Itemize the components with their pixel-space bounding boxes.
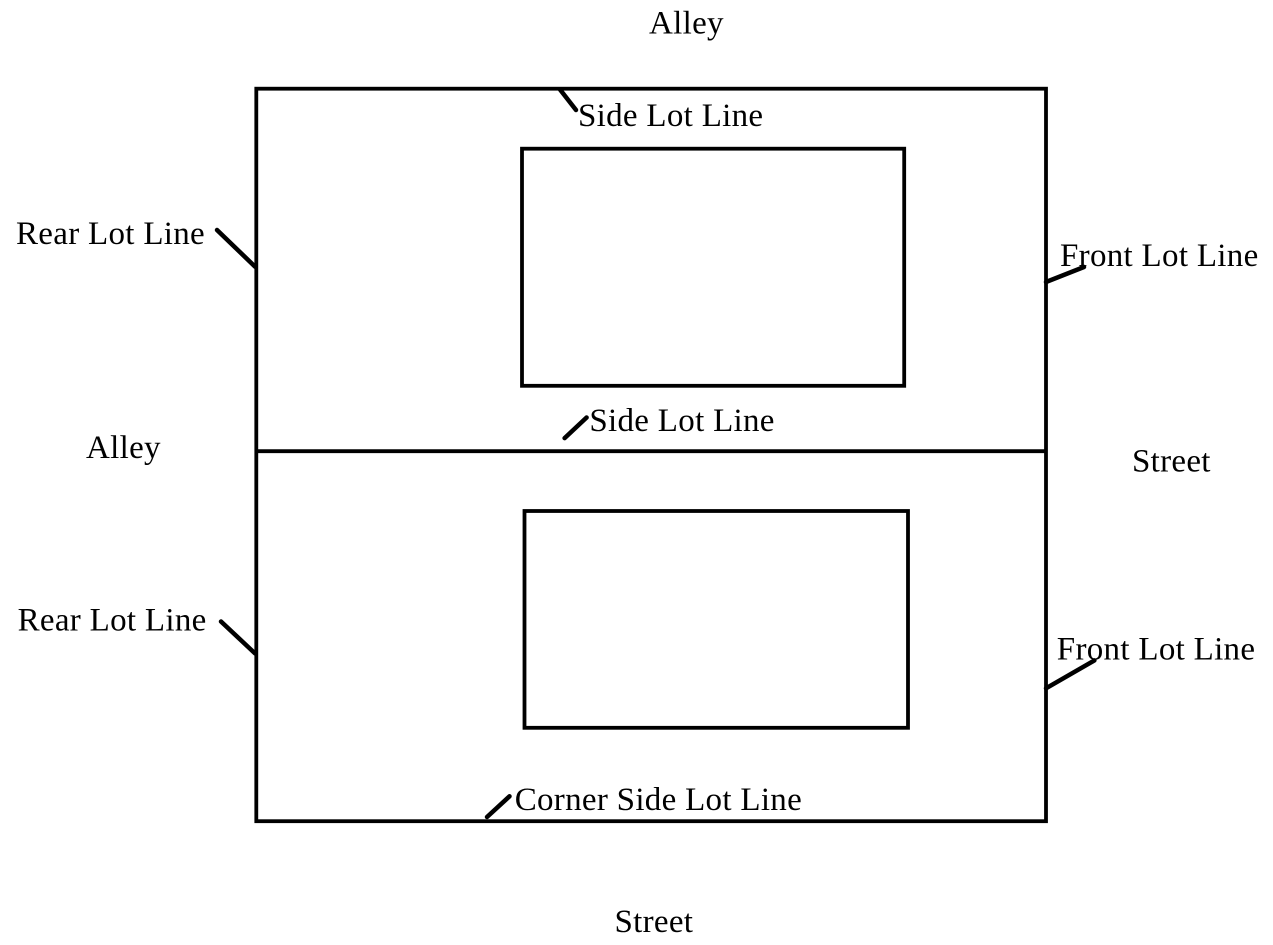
svg-text:Side Lot Line: Side Lot Line bbox=[589, 403, 774, 439]
svg-text:Rear Lot Line: Rear Lot Line bbox=[16, 216, 205, 252]
svg-text:Corner Side Lot Line: Corner Side Lot Line bbox=[515, 782, 802, 818]
svg-text:Rear Lot Line: Rear Lot Line bbox=[18, 602, 207, 638]
svg-text:Side Lot Line: Side Lot Line bbox=[578, 98, 763, 134]
svg-text:Alley: Alley bbox=[86, 430, 161, 466]
svg-text:Street: Street bbox=[1132, 444, 1211, 480]
svg-text:Alley: Alley bbox=[649, 6, 724, 42]
svg-text:Front Lot Line: Front Lot Line bbox=[1060, 238, 1259, 274]
svg-text:Street: Street bbox=[615, 904, 694, 940]
svg-text:Front Lot Line: Front Lot Line bbox=[1057, 631, 1256, 667]
